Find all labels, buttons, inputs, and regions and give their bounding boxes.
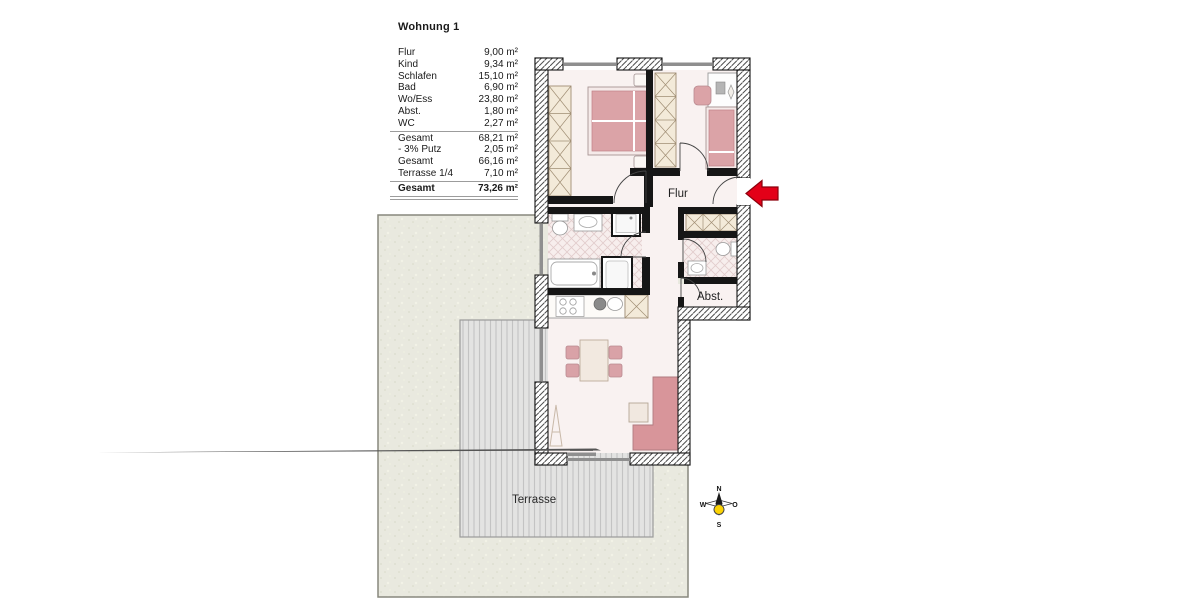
room-area: 73,26 m² <box>478 183 518 195</box>
compass-rose-icon: N S W O <box>700 486 739 529</box>
room-area: 9,00 m² <box>484 47 518 59</box>
room-name: Bad <box>398 82 416 94</box>
compass-north: N <box>716 486 721 493</box>
area-row: Gesamt68,21 m² <box>398 133 518 145</box>
hall-label: Flur <box>668 188 688 200</box>
area-row: Schlafen15,10 m² <box>398 71 518 83</box>
vanity-sink <box>574 214 602 231</box>
kids-window <box>663 63 712 67</box>
area-row: Wo/Ess23,80 m² <box>398 94 518 106</box>
room-area: 66,16 m² <box>479 156 518 168</box>
toilet <box>552 214 568 235</box>
area-row: - 3% Putz2,05 m² <box>398 144 518 156</box>
hand-sink <box>688 261 706 275</box>
room-area: 7,10 m² <box>484 168 518 180</box>
room-area: 9,34 m² <box>484 59 518 71</box>
room-name: Schlafen <box>398 71 437 83</box>
storage-label: Abst. <box>697 291 723 303</box>
chair <box>566 346 579 359</box>
stove <box>556 297 584 317</box>
room-name: Gesamt <box>398 156 433 168</box>
room-area: 23,80 m² <box>479 94 518 106</box>
wardrobe <box>655 73 676 167</box>
terrace-label: Terrasse <box>512 494 556 506</box>
room-area: 2,05 m² <box>484 144 518 156</box>
room-name: Gesamt <box>398 183 435 195</box>
entrance-arrow-icon <box>746 181 778 207</box>
area-row: Gesamt66,16 m² <box>398 156 518 168</box>
table-divider <box>390 181 518 182</box>
area-row: Flur9,00 m² <box>398 47 518 59</box>
patio-door-fixed <box>567 458 630 461</box>
toilet <box>716 242 737 256</box>
bath-window <box>540 224 544 274</box>
area-row: Kind9,34 m² <box>398 59 518 71</box>
area-row: WC2,27 m² <box>398 118 518 130</box>
bathtub <box>548 259 600 288</box>
room-name: Gesamt <box>398 133 433 145</box>
room-area: 15,10 m² <box>479 71 518 83</box>
washer-niche <box>602 257 632 293</box>
dining-table <box>580 340 608 381</box>
nightstand <box>634 74 648 86</box>
chair <box>609 364 622 377</box>
nightstand <box>634 156 648 168</box>
tall-cabinet <box>625 295 648 318</box>
compass-east: O <box>732 502 738 509</box>
area-row-total: Gesamt73,26 m² <box>398 183 518 195</box>
shower <box>612 211 640 236</box>
desk-chair <box>694 86 711 105</box>
table-divider <box>390 131 518 132</box>
area-row: Abst.1,80 m² <box>398 106 518 118</box>
room-name: Flur <box>398 47 415 59</box>
room-name: Terrasse 1/4 <box>398 168 453 180</box>
hall-closet <box>686 214 737 231</box>
chair <box>566 364 579 377</box>
table-divider-double <box>390 196 518 200</box>
single-bed <box>706 107 737 169</box>
side-table <box>629 403 648 422</box>
bedroom-window <box>564 63 616 67</box>
compass-south: S <box>717 522 722 529</box>
room-area: 6,90 m² <box>484 82 518 94</box>
room-name: Kind <box>398 59 418 71</box>
floorplan-page: Terrasse <box>0 0 1200 600</box>
kitchen-counter <box>548 295 648 318</box>
floorplan-drawing: Terrasse <box>0 0 1200 600</box>
page-title: Wohnung 1 <box>398 20 518 34</box>
area-row: Bad6,90 m² <box>398 82 518 94</box>
room-name: Wo/Ess <box>398 94 432 106</box>
double-bed <box>588 87 649 155</box>
patio-door <box>567 453 596 457</box>
room-area: 2,27 m² <box>484 118 518 130</box>
room-name: - 3% Putz <box>398 144 441 156</box>
chair <box>609 346 622 359</box>
wardrobe <box>549 86 571 196</box>
room-area: 68,21 m² <box>479 133 518 145</box>
room-area: 1,80 m² <box>484 106 518 118</box>
living-window <box>540 329 544 381</box>
monitor <box>716 82 725 94</box>
compass-west: W <box>700 502 707 509</box>
area-row: Terrasse 1/47,10 m² <box>398 168 518 180</box>
room-name: Abst. <box>398 106 421 118</box>
area-table: Wohnung 1 Flur9,00 m² Kind9,34 m² Schlaf… <box>398 20 518 201</box>
room-name: WC <box>398 118 415 130</box>
